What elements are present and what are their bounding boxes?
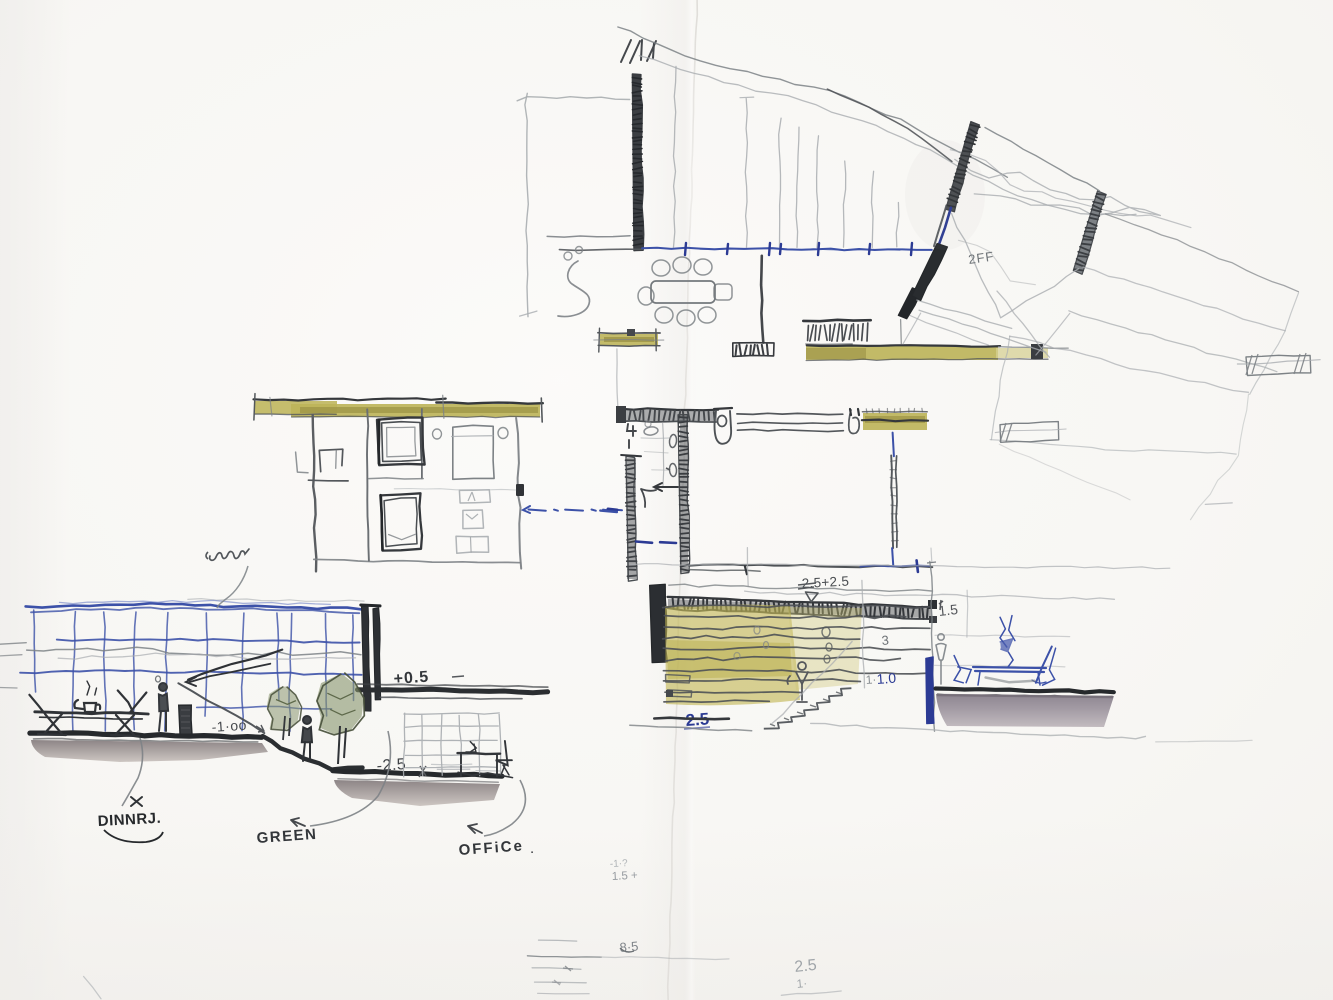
svg-text:-1·?: -1·? xyxy=(610,858,629,870)
svg-text:+0.5: +0.5 xyxy=(393,669,430,688)
svg-text:.: . xyxy=(530,840,534,857)
svg-text:1·: 1· xyxy=(865,672,877,687)
svg-text:1·: 1· xyxy=(796,976,808,991)
svg-text:-1·oo: -1·oo xyxy=(211,717,247,735)
svg-text:2.5: 2.5 xyxy=(794,957,818,976)
svg-text:3: 3 xyxy=(881,632,890,648)
svg-text:DINNRJ.: DINNRJ. xyxy=(97,810,161,830)
svg-text:1.5 +: 1.5 + xyxy=(612,870,639,883)
svg-text:-2.5: -2.5 xyxy=(376,756,407,775)
svg-text:1.0: 1.0 xyxy=(876,670,897,687)
